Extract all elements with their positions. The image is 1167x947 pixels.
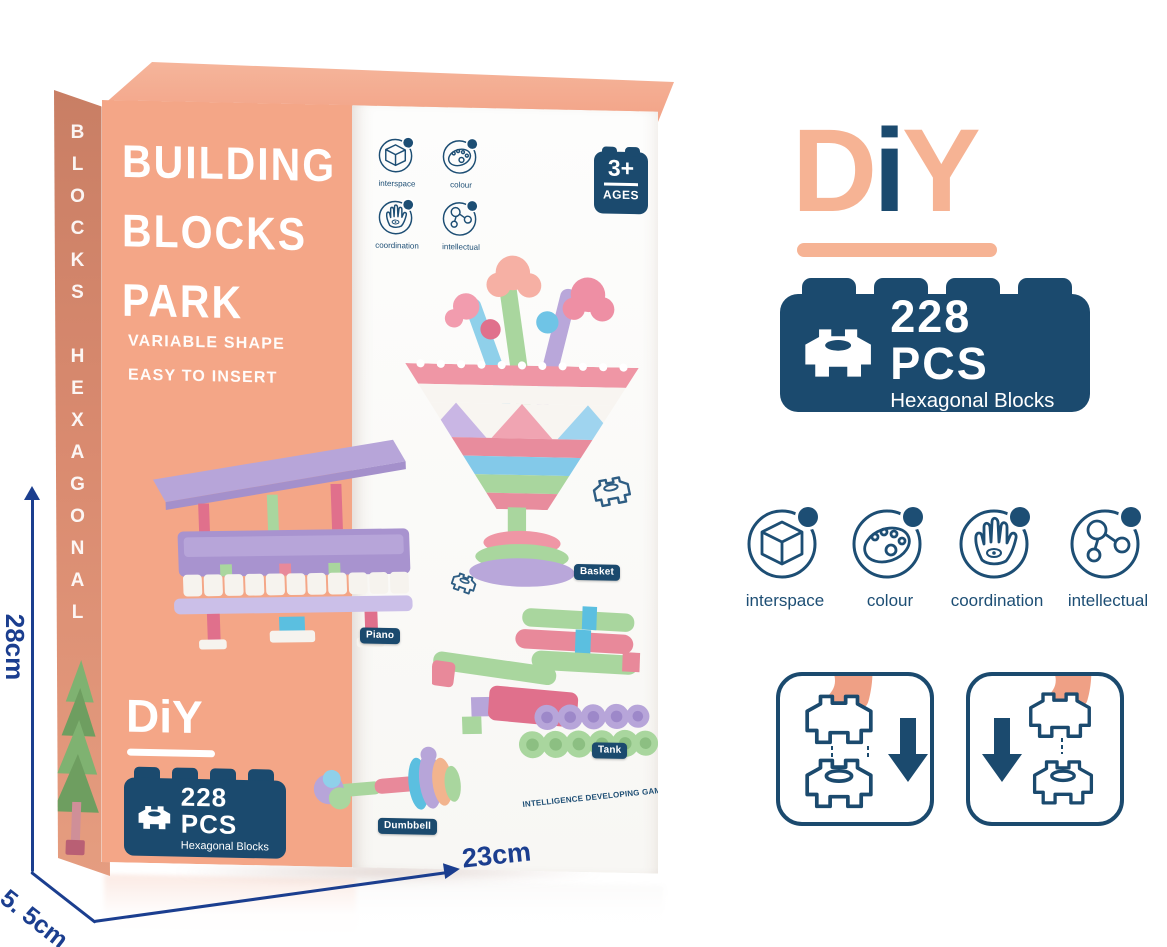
feature-intellectual: intellectual xyxy=(434,197,488,252)
insert-instruction-panel-2 xyxy=(966,672,1124,826)
pcs-label: Hexagonal Blocks xyxy=(181,840,278,854)
diy-letter-i: i xyxy=(873,105,902,237)
title-line-2: BLOCKS xyxy=(122,196,336,270)
dumbbell-toy-image xyxy=(308,740,473,828)
age-badge: 3+ AGES xyxy=(594,142,648,214)
molecule-icon xyxy=(441,197,481,238)
pcs-label: Hexagonal Blocks xyxy=(890,389,1080,413)
height-dimension-line xyxy=(31,498,34,872)
palette-icon xyxy=(441,135,481,176)
feature-interspace: interspace xyxy=(370,134,424,189)
toy-label-tank: Tank xyxy=(592,742,627,759)
piano-toy-image xyxy=(150,419,426,655)
subtitle-variable-shape: VARIABLE SHAPE xyxy=(128,333,285,354)
pcs-banner-body: 228 PCS Hexagonal Blocks xyxy=(780,294,1090,412)
down-arrow-icon xyxy=(888,718,928,782)
box-feature-icons: interspace colour xyxy=(370,134,488,252)
toy-label-dumbbell: Dumbbell xyxy=(378,818,437,835)
spine-text: BLOCKS HEXAGONAL xyxy=(66,122,88,634)
diy-letter-y: Y xyxy=(902,105,977,237)
feature-label: colour xyxy=(847,591,933,611)
width-arrow-right-icon xyxy=(443,861,461,879)
pcs-badge-body: 228 PCS Hexagonal Blocks xyxy=(124,777,286,858)
age-value: 3+ xyxy=(594,155,648,181)
feature-label: interspace xyxy=(370,179,424,189)
brick-studs xyxy=(594,142,648,152)
age-divider xyxy=(604,183,638,186)
pcs-banner: 228 PCS Hexagonal Blocks xyxy=(780,278,1090,414)
feature-coordination: coordination xyxy=(943,500,1051,611)
pcs-count: 228 PCS xyxy=(890,293,1080,388)
pcs-count: 228 PCS xyxy=(181,783,278,840)
feature-coordination: coordination xyxy=(370,196,424,251)
product-title: BUILDING BLOCKS PARK xyxy=(122,126,336,339)
diy-logo-underline xyxy=(127,749,215,758)
pcs-badge-box: 228 PCS Hexagonal Blocks xyxy=(124,766,286,861)
box-front-face: BUILDING BLOCKS PARK VARIABLE SHAPE EASY… xyxy=(102,100,658,874)
subtitle-easy-insert: EASY TO INSERT xyxy=(128,367,278,388)
feature-intellectual: intellectual xyxy=(1058,500,1158,611)
hand-eye-icon xyxy=(956,500,1038,582)
palette-icon xyxy=(849,500,931,582)
hex-block-icon xyxy=(136,801,173,833)
brick-studs xyxy=(780,278,1090,291)
diy-letter-d: D xyxy=(792,105,873,237)
box-spine-face: BLOCKS HEXAGONAL xyxy=(50,80,110,880)
diy-logo-box: DiY xyxy=(126,693,203,741)
diy-logo-large: DiY xyxy=(792,112,977,230)
feature-label: colour xyxy=(434,180,488,190)
insert-diagram xyxy=(970,676,1120,822)
title-line-1: BUILDING xyxy=(122,126,336,200)
feature-colour: colour xyxy=(434,135,488,190)
product-marketing-image: BLOCKS HEXAGONAL BUILDING BLOCKS PARK VA… xyxy=(0,0,1167,947)
age-label: AGES xyxy=(594,187,648,202)
pine-tree-graphic xyxy=(55,652,101,862)
cube-icon xyxy=(377,134,417,175)
hand-eye-icon xyxy=(377,196,417,237)
insert-instruction-panel-1 xyxy=(776,672,934,826)
height-arrow-up-icon xyxy=(24,486,40,500)
feature-interspace: interspace xyxy=(742,500,828,611)
molecule-icon xyxy=(1067,500,1149,582)
feature-label: intellectual xyxy=(1058,591,1158,611)
insert-diagram xyxy=(780,676,930,822)
diy-logo-underline xyxy=(797,243,997,257)
hex-block-icon xyxy=(800,324,876,382)
height-dimension-label: 28cm xyxy=(0,592,30,702)
down-arrow-icon xyxy=(982,718,1022,782)
feature-label: coordination xyxy=(943,591,1051,611)
toy-label-basket: Basket xyxy=(574,564,620,581)
toy-label-piano: Piano xyxy=(360,627,400,644)
feature-label: interspace xyxy=(742,591,828,611)
cube-icon xyxy=(744,500,826,582)
feature-colour: colour xyxy=(847,500,933,611)
title-line-3: PARK xyxy=(122,265,336,339)
